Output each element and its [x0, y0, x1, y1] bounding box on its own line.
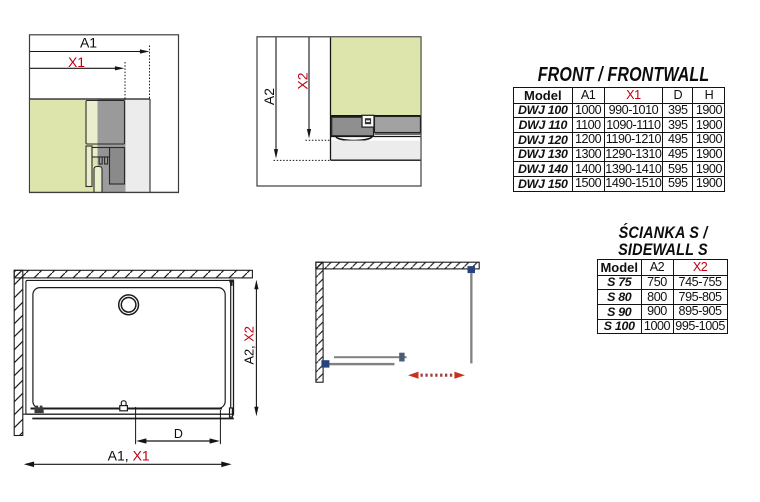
- svg-text:X1: X1: [68, 54, 85, 70]
- svg-text:A1, X1: A1, X1: [108, 448, 150, 464]
- svg-text:A2: A2: [261, 88, 277, 105]
- svg-text:A2, X2: A2, X2: [242, 326, 257, 364]
- svg-text:D: D: [174, 427, 183, 441]
- svg-text:A1: A1: [80, 35, 97, 51]
- svg-text:X2: X2: [294, 72, 310, 89]
